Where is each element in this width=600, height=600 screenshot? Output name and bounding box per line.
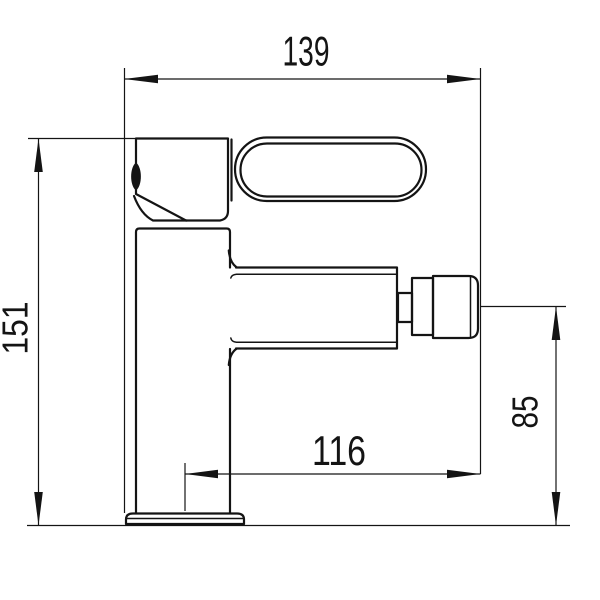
- arrow-116-left: [185, 470, 218, 479]
- lever-grip-inner: [241, 144, 422, 197]
- faucet-outline: [126, 138, 478, 525]
- dim-label-overall-depth: 139: [283, 28, 330, 75]
- lever-grip-outer: [235, 138, 426, 202]
- faucet-technical-drawing: 139 116 151 85: [0, 0, 600, 600]
- arrow-85-top: [552, 307, 561, 341]
- arrow-139-right: [447, 75, 481, 84]
- arrow-85-bottom: [552, 492, 561, 526]
- aerator-collar: [412, 278, 433, 335]
- lever-tip: [131, 163, 141, 191]
- arrow-151-top: [34, 139, 43, 173]
- arrow-151-bottom: [34, 492, 43, 526]
- arrow-116-right: [447, 470, 481, 479]
- outlet-stem: [398, 293, 412, 322]
- dimension-labels: 139 116 151 85: [0, 28, 546, 475]
- dim-label-spout-outlet-height: 85: [505, 396, 546, 429]
- dim-label-spout-reach: 116: [312, 427, 366, 474]
- spout-inner-bottom-line: [231, 338, 397, 342]
- handle-housing: [136, 139, 228, 221]
- arrow-139-left: [125, 75, 159, 84]
- dim-label-total-height: 151: [0, 302, 36, 355]
- spout-inner-top-line: [231, 274, 397, 278]
- spout-block: [236, 268, 397, 349]
- drawing-canvas: 139 116 151 85: [0, 0, 600, 600]
